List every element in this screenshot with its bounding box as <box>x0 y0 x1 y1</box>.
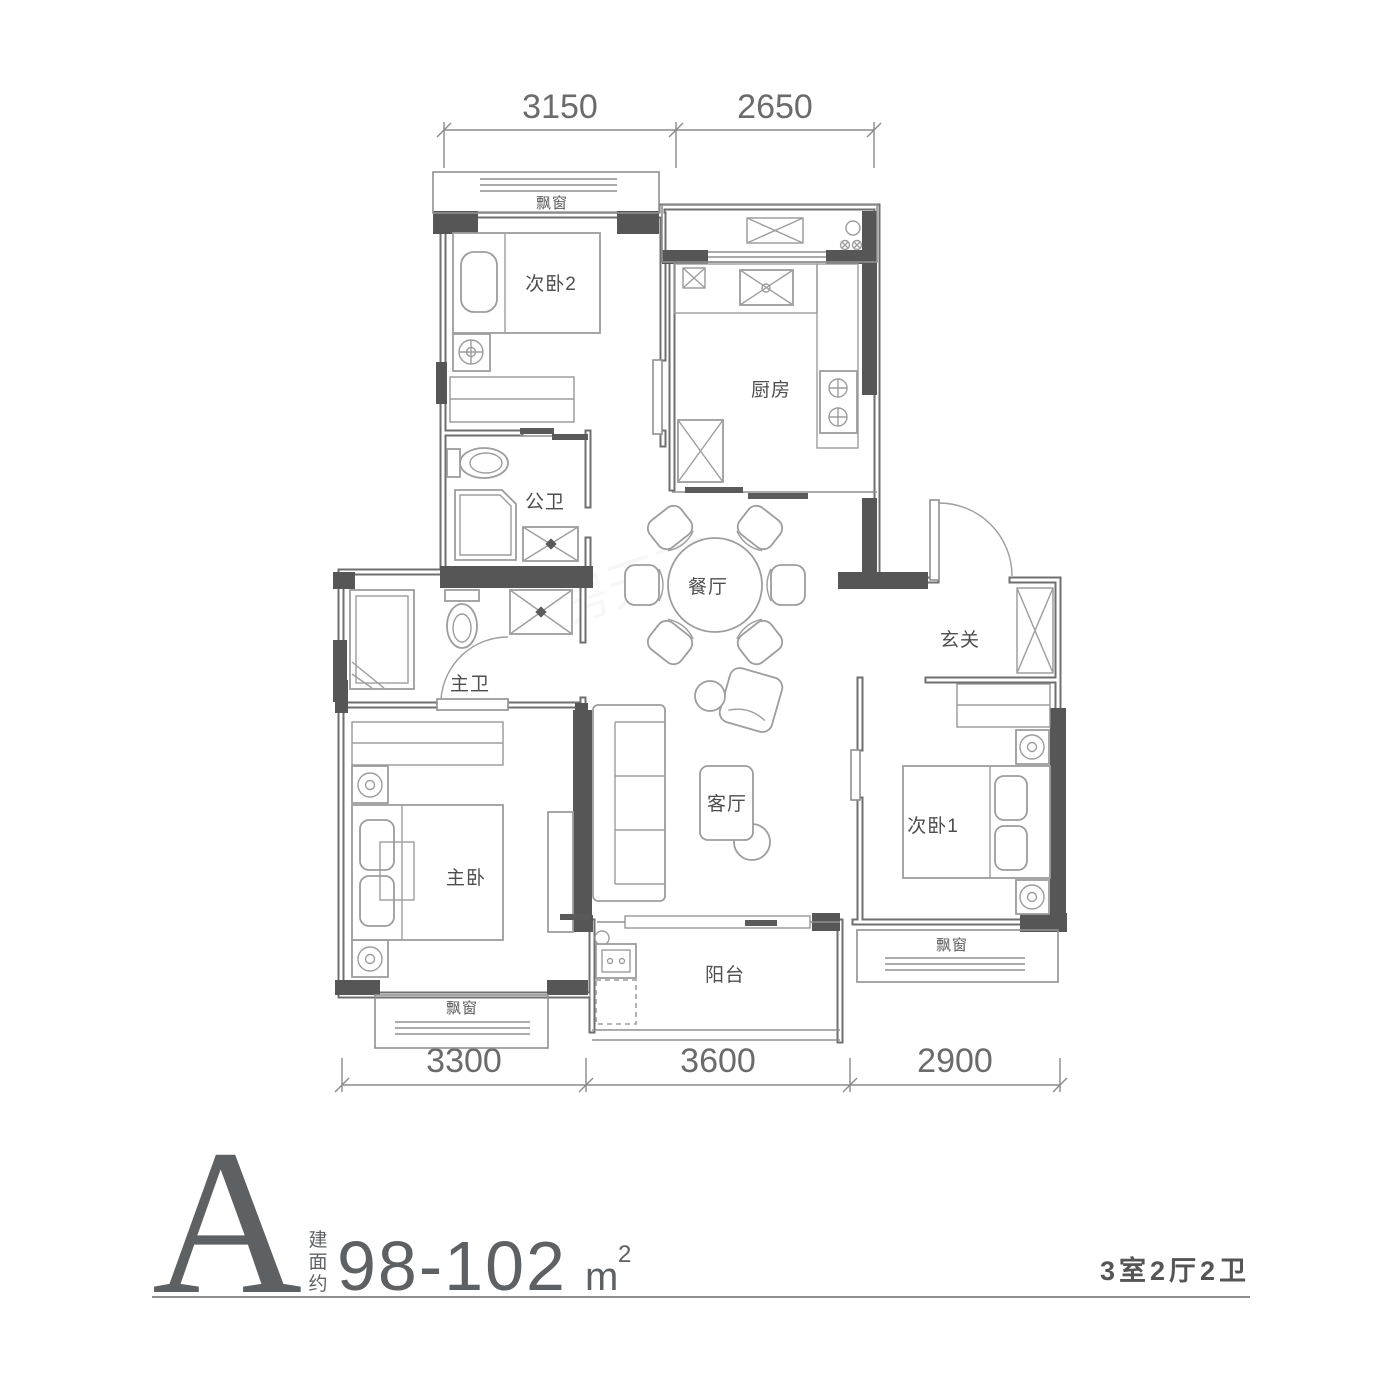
bay-window-master: 飘窗 <box>375 995 548 1048</box>
public-bath-label: 公卫 <box>525 492 565 513</box>
bay-window-top-label: 飘窗 <box>536 194 568 212</box>
bedroom1-label: 次卧1 <box>907 815 959 837</box>
bay-window-top: 飘窗 <box>433 172 659 213</box>
master-bedroom-door-leaf <box>437 699 508 710</box>
master-bedroom-label: 主卧 <box>446 867 486 889</box>
bay-window-master-label: 飘窗 <box>446 999 478 1017</box>
room-living: 客厅 <box>593 666 860 901</box>
area-unit-superscript: 2 <box>618 1241 631 1268</box>
master-bath-label: 主卫 <box>450 673 490 695</box>
area-prefix-char3: 约 <box>308 1273 327 1295</box>
bay-window-bedroom1-label: 飘窗 <box>936 936 968 954</box>
area-prefix-char1: 建 <box>308 1229 327 1251</box>
floor-plan-page: 房天下 3150 2650 3300 3600 2900 <box>0 0 1400 1400</box>
area-unit: m <box>585 1255 618 1299</box>
dimension-bottom: 3300 3600 2900 <box>335 1042 1067 1092</box>
dim-bottom-2900: 2900 <box>917 1042 993 1080</box>
entry-door-swing <box>939 503 1012 576</box>
dimension-top: 3150 2650 <box>437 88 881 168</box>
unit-letter: A <box>152 1107 302 1337</box>
kitchen-label: 厨房 <box>751 379 791 401</box>
bay-window-bedroom1: 飘窗 <box>857 930 1058 982</box>
room-balcony: 阳台 <box>560 914 840 1040</box>
dim-top-3150: 3150 <box>522 88 598 126</box>
room-bedroom2: 次卧2 <box>450 233 662 434</box>
room-kitchen: 厨房 <box>662 205 877 499</box>
dim-top-2650: 2650 <box>737 88 813 126</box>
balcony-label: 阳台 <box>705 964 745 986</box>
room-dining: 餐厅 <box>625 502 805 668</box>
area-value: 98-102 <box>337 1227 567 1305</box>
room-master-bath: 主卫 <box>350 590 572 695</box>
floor-plan-drawing: 房天下 3150 2650 3300 3600 2900 <box>0 0 1400 1400</box>
foyer-label: 玄关 <box>940 629 980 651</box>
area-prefix-char2: 面 <box>308 1252 327 1273</box>
layout-summary: 3室2厅2卫 <box>1100 1255 1250 1286</box>
living-label: 客厅 <box>707 793 747 815</box>
entry-door-leaf <box>930 500 939 580</box>
room-public-bath: 公卫 <box>447 428 588 561</box>
legend: A 建 面 约 98-102 m 2 3室2厅2卫 <box>152 1107 1250 1337</box>
room-bedroom1: 次卧1 <box>903 684 1050 914</box>
room-foyer: 玄关 <box>930 500 1053 673</box>
bedroom2-label: 次卧2 <box>525 273 577 295</box>
dining-label: 餐厅 <box>688 576 728 598</box>
bedroom1-door-leaf <box>851 750 860 800</box>
dim-bottom-3600: 3600 <box>680 1042 756 1080</box>
